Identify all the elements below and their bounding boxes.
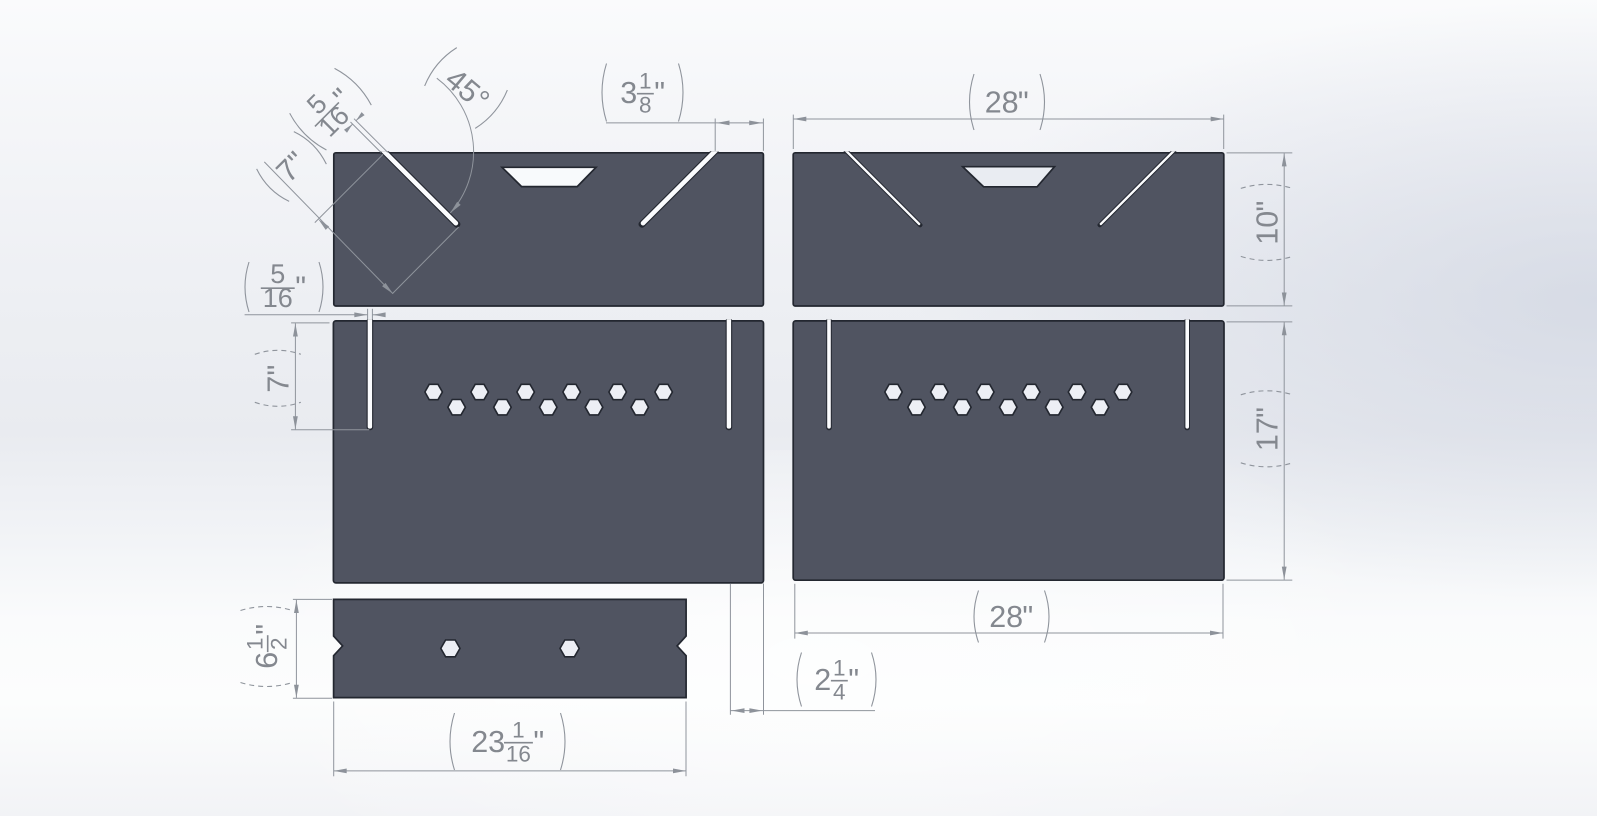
svg-text:6: 6 — [250, 652, 284, 669]
svg-text:1: 1 — [639, 69, 652, 94]
svg-text:23: 23 — [471, 725, 505, 759]
svg-text:": " — [533, 725, 544, 759]
svg-text:": " — [654, 76, 665, 110]
svg-text:": " — [1022, 600, 1033, 634]
svg-text:28: 28 — [989, 600, 1023, 634]
svg-text:16: 16 — [506, 742, 531, 767]
svg-text:": " — [1250, 407, 1284, 418]
svg-text:10: 10 — [1250, 211, 1284, 245]
svg-text:7: 7 — [261, 376, 295, 393]
svg-text:2: 2 — [814, 663, 831, 697]
svg-text:28: 28 — [985, 86, 1019, 120]
svg-text:": " — [848, 663, 859, 697]
svg-text:": " — [1250, 201, 1284, 212]
svg-text:1: 1 — [243, 637, 268, 650]
svg-text:": " — [1018, 86, 1029, 120]
svg-text:": " — [295, 271, 306, 305]
svg-text:4: 4 — [833, 680, 846, 705]
svg-text:1: 1 — [512, 718, 525, 743]
svg-text:17: 17 — [1250, 417, 1284, 451]
svg-text:3: 3 — [620, 76, 637, 110]
svg-text:": " — [250, 624, 284, 635]
svg-text:8: 8 — [639, 93, 652, 118]
svg-text:": " — [261, 365, 295, 376]
svg-text:2: 2 — [267, 637, 292, 650]
svg-text:1: 1 — [833, 656, 846, 681]
svg-text:16: 16 — [263, 283, 293, 313]
